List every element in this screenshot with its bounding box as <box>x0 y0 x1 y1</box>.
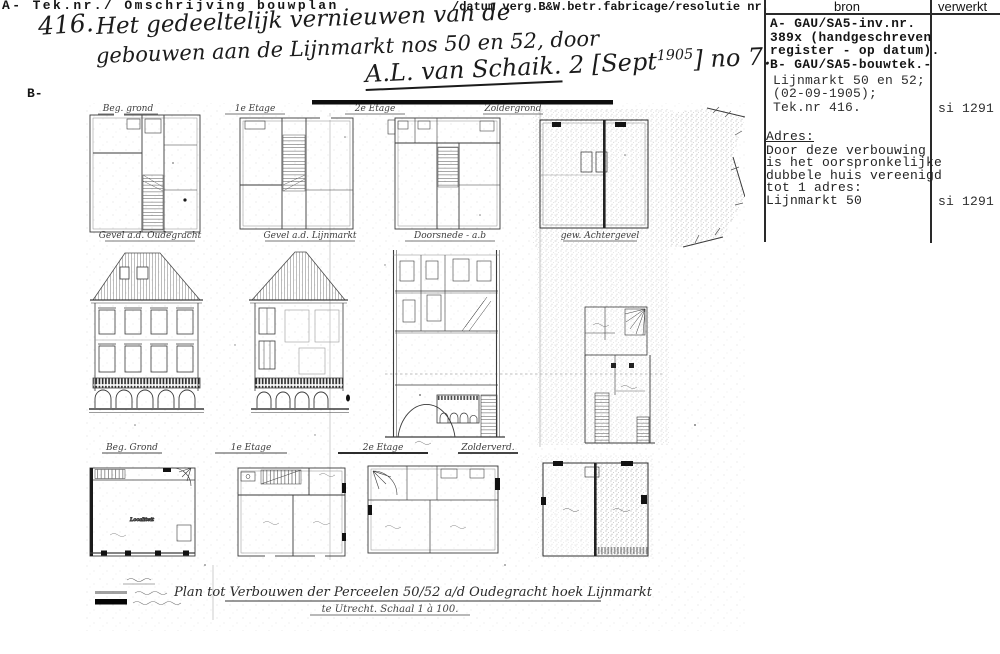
handwritten-number: 416. <box>37 8 95 41</box>
entry-line: Lijnmarkt 50 en 52; <box>773 74 925 87</box>
label-gevel-oudegracht: Gevel a.d. Oudegracht <box>99 231 202 241</box>
bouwplan-drawing: Beg. grond 1e Etage 2e Etage Zoldergrond <box>85 95 745 635</box>
source-bold-block: A- GAU/SA5-inv.nr. 389x (handgeschreven … <box>770 17 940 71</box>
source-line: 389x (handgeschreven <box>770 31 940 45</box>
label-beg-grond: Beg. grond <box>102 104 154 114</box>
label-2e-etage: 2e Etage <box>354 104 396 114</box>
label-beg-grond-nieuw: Beg. Grond <box>105 443 158 453</box>
archive-card: A- Tek.nr./ Omschrijving bouwplan /datum… <box>0 0 1000 654</box>
room-label-localiteit: Localiteit <box>129 517 155 523</box>
source-line: B- GAU/SA5-bouwtek.- <box>770 58 940 72</box>
caption-subtitle: te Utrecht. Schaal 1 à 100. <box>322 604 459 615</box>
column-header-bron: bron <box>834 0 860 14</box>
adres-block: Door deze verbouwing is het oorspronkeli… <box>766 145 942 207</box>
label-doorsnede: Doorsnede - a.b <box>413 231 486 241</box>
source-entry-block: Lijnmarkt 50 en 52; (02-09-1905); Tek.nr… <box>773 74 925 114</box>
label-achtergevel: gew. Achtergevel <box>561 231 640 241</box>
signature-date-b: ] no 7. <box>693 42 772 73</box>
b-label: B- <box>27 86 43 101</box>
caption-title: Plan tot Verbouwen der Perceelen 50/52 a… <box>173 585 653 600</box>
legend-existing-swatch <box>95 591 127 594</box>
label-1e-etage-nieuw: 1e Etage <box>231 443 272 453</box>
legend-new-swatch <box>95 599 127 605</box>
label-zolderverd-nieuw: Zolderverd. <box>460 443 514 453</box>
adres-line: Lijnmarkt 50 <box>766 195 942 207</box>
label-1e-etage: 1e Etage <box>235 104 276 114</box>
verwerkt-entry: si 1291 <box>938 102 994 115</box>
signature-year: 1905 <box>656 47 693 65</box>
label-gevel-lijnmarkt: Gevel a.d. Lijnmarkt <box>263 231 356 241</box>
label-2e-etage-nieuw: 2e Etage <box>362 443 404 453</box>
entry-line: (02-09-1905); <box>773 87 925 100</box>
label-zoldergrond: Zoldergrond <box>484 104 542 114</box>
source-line: register - op datum). <box>770 44 940 58</box>
adres-label: Adres: <box>766 131 814 143</box>
signature-date-a: 2 [Sept <box>568 47 657 79</box>
verwerkt-adres: si 1291 <box>938 195 994 208</box>
column-header-verwerkt: verwerkt <box>938 0 987 14</box>
source-line: A- GAU/SA5-inv.nr. <box>770 17 940 31</box>
entry-line: Tek.nr 416. <box>773 101 925 114</box>
